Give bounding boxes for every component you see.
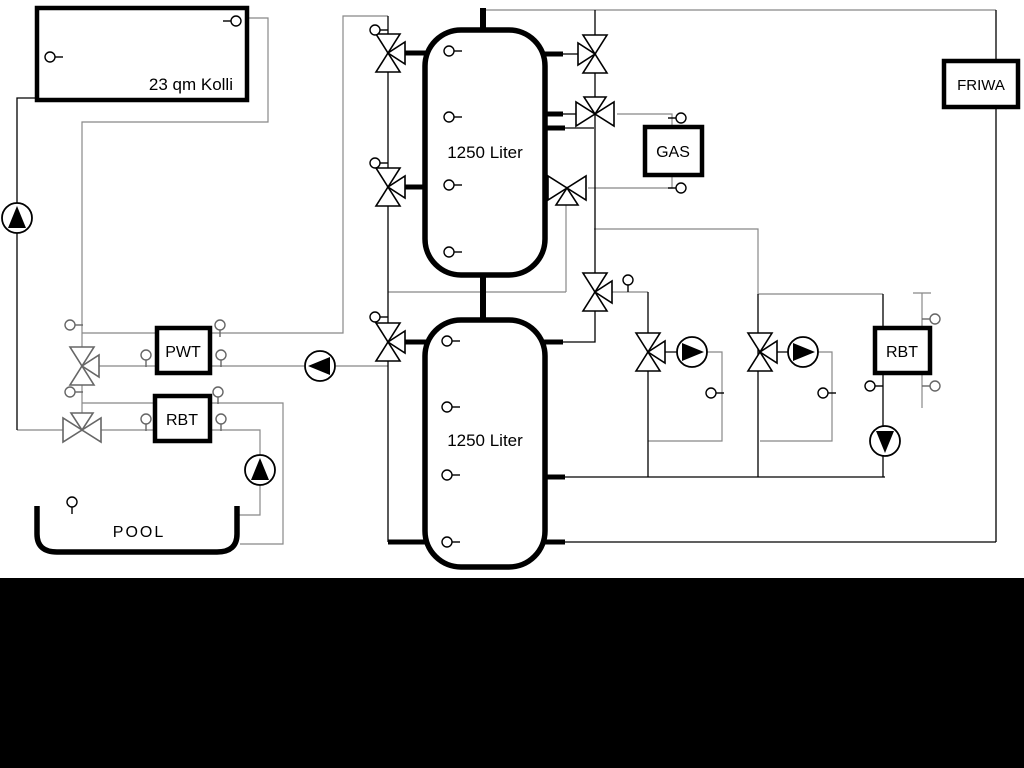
footer-black-band [0,578,1024,768]
rbt-circulation-pump-icon [870,426,900,456]
pool-label: POOL [113,524,165,541]
collector-label: 23 qm Kolli [149,75,233,94]
schematic-viewer: 23 qm Kolli 1250 Liter 1250 Liter GAS FR… [0,0,1024,768]
pool-pump-icon [245,455,275,485]
friwa-label: FRIWA [957,77,1005,94]
tank-upper-label: 1250 Liter [447,143,523,162]
pwt-label: PWT [165,344,201,361]
gas-label: GAS [656,144,690,161]
pwt-charge-pump-icon [305,351,335,381]
heating-pump-2-icon [788,337,818,367]
hydraulic-schematic: 23 qm Kolli 1250 Liter 1250 Liter GAS FR… [0,0,1024,768]
solar-pump-icon [2,203,32,233]
tank-lower-label: 1250 Liter [447,431,523,450]
rbt-left-label: RBT [166,412,198,429]
rbt-right-label: RBT [886,344,918,361]
heating-pump-1-icon [677,337,707,367]
